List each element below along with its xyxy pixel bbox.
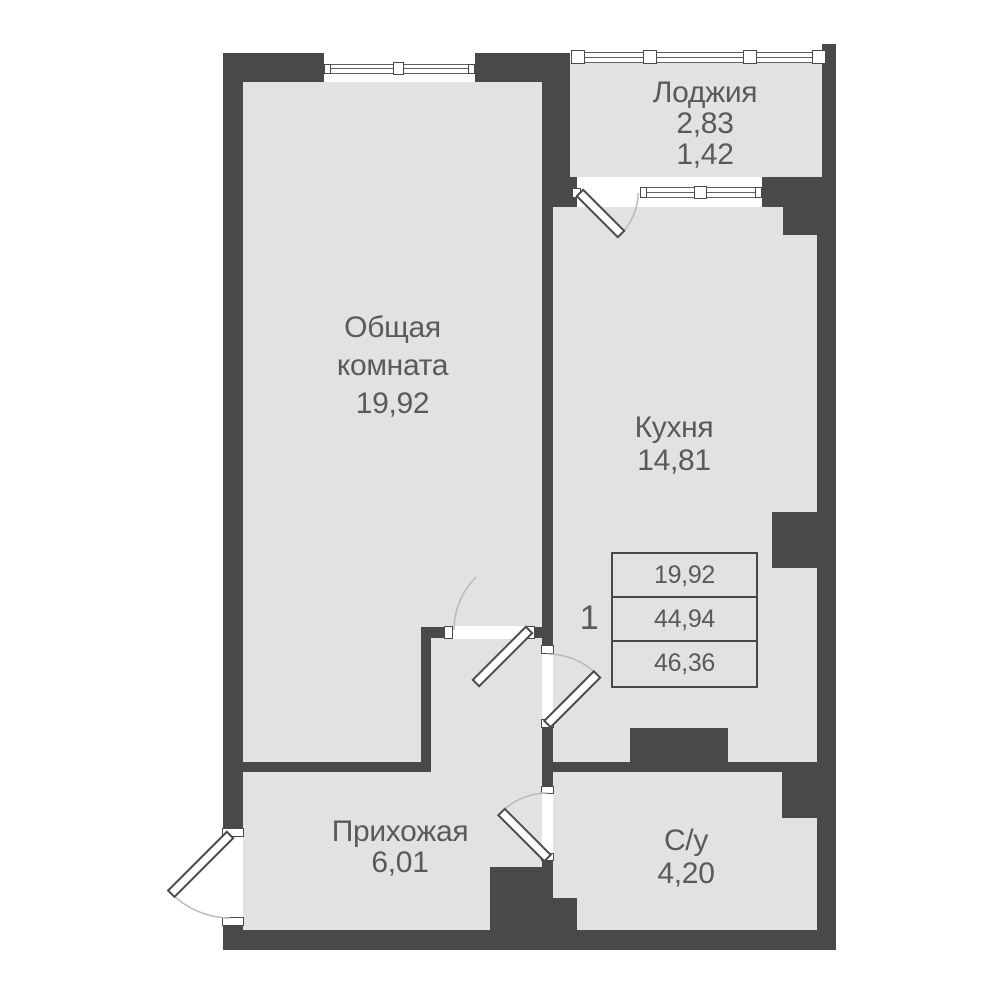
floor-plan: Лоджия 2,83 1,42 Общая комната 19,92 Кух… [0,0,1000,1000]
hallway-area: 6,01 [250,847,550,878]
loggia-area-1: 2,83 [580,108,830,139]
living-name-line1: Общая [243,309,542,347]
living-door-leaf [473,627,532,686]
table-row-usable-area: 44,94 [613,598,756,642]
living-area: 19,92 [243,385,542,423]
living-door-arc [454,577,476,630]
table-row-living-area: 19,92 [613,554,756,598]
unit-number: 1 [564,601,614,635]
kitchen-door-leaf [544,671,600,727]
living-name-line2: комната [243,347,542,385]
loggia-name: Лоджия [580,77,830,108]
label-loggia: Лоджия 2,83 1,42 [580,77,830,170]
table-row-total-area: 46,36 [613,642,756,684]
label-hallway: Прихожая 6,01 [250,816,550,878]
hallway-name: Прихожая [250,816,550,847]
kitchen-name: Кухня [553,411,795,444]
label-living-room: Общая комната 19,92 [243,309,542,423]
loggia-area-2: 1,42 [580,139,830,170]
label-bathroom: С/у 4,20 [560,824,812,890]
kitchen-area: 14,81 [553,444,795,477]
bathroom-area: 4,20 [560,857,812,890]
area-summary-table: 19,92 44,94 46,36 [611,552,758,688]
entrance-door-arc [171,893,230,918]
bathroom-name: С/у [560,824,812,857]
balcony-door-leaf [577,190,624,237]
bathroom-door-arc [502,793,548,812]
label-kitchen: Кухня 14,81 [553,411,795,477]
balcony-door-arc [621,193,638,234]
entrance-door-leaf [168,832,233,897]
kitchen-door-arc [548,654,598,675]
